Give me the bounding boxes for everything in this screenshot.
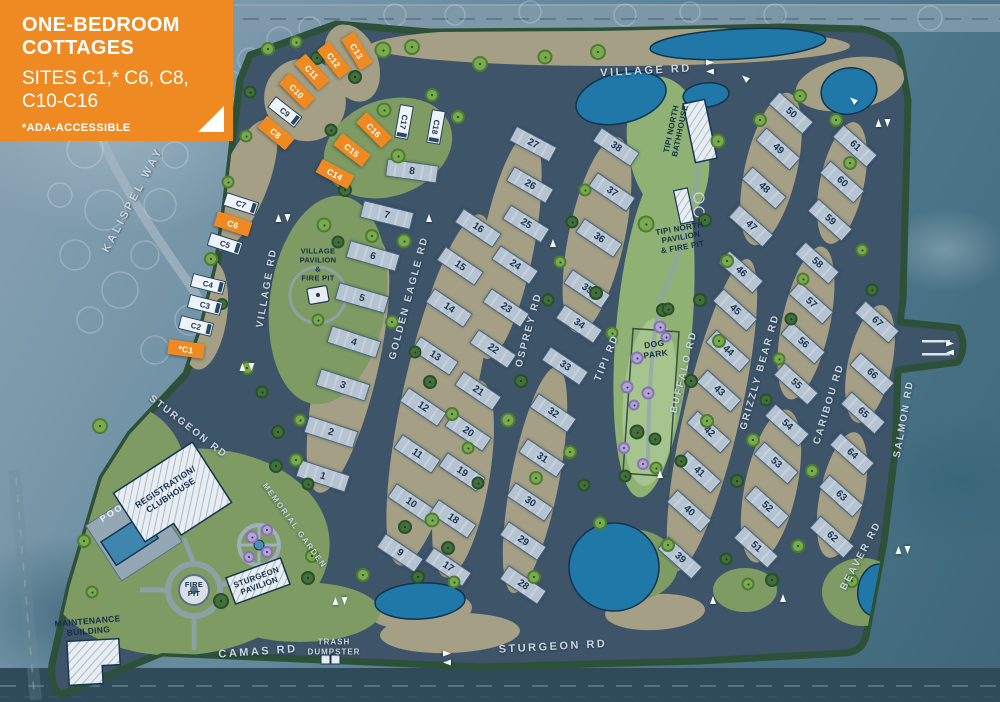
tree-icon [425,88,439,102]
traffic-arrow-icon [550,239,556,247]
site-pad: 30 [506,482,554,522]
tree-icon [711,134,726,149]
road-label: TRASH DUMPSTER [308,638,361,659]
tree-icon [312,314,325,327]
site-number: 7 [383,209,391,221]
site-pad: 36 [575,218,623,258]
tree-icon [579,184,592,197]
site-number: 56 [795,335,811,351]
road-label: VILLAGE RD [254,247,281,329]
tree-icon [317,218,332,233]
cottage-label: C17 [398,114,409,130]
tree-icon [398,520,412,534]
tree-icon [462,442,475,455]
site-number: 23 [498,300,513,315]
site-pad: 12 [399,387,447,427]
tree-icon [261,524,273,536]
tree-icon [538,50,553,65]
cottage-site: C7 [223,192,260,216]
tree-icon [411,570,425,584]
road-label: STURGEON RD [498,637,607,657]
site-pad: 37 [588,172,636,212]
site-number: 1 [319,470,328,482]
site-number: 59 [822,212,838,228]
site-pad: 4 [326,325,381,358]
site-number: 14 [441,300,456,315]
tree-icon [425,513,440,528]
site-number: 36 [591,230,606,245]
tree-icon [92,418,108,434]
site-pad: 56 [780,321,826,364]
tree-icon [661,538,675,552]
cottage-label: *C1 [178,343,194,355]
amenity-label: VILLAGE PAVILION & FIRE PIT [300,247,337,282]
tree-icon [290,36,303,49]
traffic-arrow-icon [333,597,348,605]
site-pad: 31 [518,438,566,478]
site-number: 12 [415,399,430,414]
tree-icon [637,458,649,470]
road-label: STURGEON RD [146,392,230,461]
road-label: CAMAS RD [218,642,298,662]
site-pad: 26 [506,166,554,204]
cottage-label: C16 [365,121,384,140]
site-pad: 23 [482,288,530,328]
site-number: 40 [681,503,697,519]
resort-map: KALISPEL WAYVILLAGE RDVILLAGE RDSTURGEON… [0,0,1000,702]
tree-icon [720,254,734,268]
site-pad: 51 [733,525,779,568]
site-pad: 40 [666,489,712,532]
traffic-arrow-icon [848,95,858,105]
site-number: 2 [327,426,336,438]
site-number: 51 [748,539,764,555]
tree-icon [472,56,488,72]
site-pad: 9 [376,533,424,573]
site-number: 53 [768,455,784,471]
tree-icon [243,551,255,563]
tree-icon [760,394,773,407]
tree-icon [261,546,273,558]
tree-icon [765,573,779,587]
site-pad: 34 [555,304,603,344]
tree-icon [856,244,869,257]
site-pad: 43 [696,369,742,412]
site-number: 48 [756,180,772,196]
tree-icon [843,156,857,170]
tree-icon [785,313,798,326]
cottage-label: C11 [303,63,321,82]
cottage-label: C15 [342,141,361,159]
tree-icon [423,375,437,389]
tree-icon [742,578,755,591]
tree-icon [451,110,465,124]
site-pad: 62 [809,515,855,558]
cottage-label: C8 [268,125,283,140]
tree-icon [269,459,283,473]
tree-icon [356,568,370,582]
site-number: 24 [507,257,522,272]
cottage-site-highlighted: C6 [214,211,253,236]
amenity-label: POOL [98,497,132,524]
cottage-label: C9 [278,105,292,118]
road-label: KALISPEL WAY [99,145,167,255]
site-number: 33 [557,358,572,373]
site-pad: 15 [436,246,484,286]
tree-icon [791,539,805,553]
site-number: 25 [518,216,533,231]
site-pad: 5 [335,282,390,314]
tree-icon [294,414,307,427]
tree-icon [448,576,461,589]
traffic-arrow-icon [443,651,451,666]
site-pad: 29 [499,521,547,561]
site-number: 46 [733,264,749,280]
tree-icon [730,474,744,488]
callout-corner-triangle [198,106,224,132]
tree-icon [753,113,767,127]
site-number: 18 [445,511,460,526]
tree-icon [375,42,392,59]
cottage-label: C12 [325,50,343,69]
tree-icon [638,216,655,233]
site-number: 22 [485,341,500,356]
site-number: 30 [522,494,537,509]
amenity-label: TIPI NORTH BATHHOUSE [661,102,690,158]
site-pad: 59 [807,198,853,241]
site-number: 45 [727,302,743,318]
site-pad: 67 [854,300,900,343]
tree-icon [619,470,632,483]
site-number: 47 [743,218,759,234]
tree-icon [261,42,275,56]
tree-icon [213,593,229,609]
cottage-label: C13 [348,41,365,60]
tree-icon [302,478,315,491]
site-pad: 14 [425,288,473,328]
tree-icon [805,464,819,478]
callout-title-line1: ONE-BEDROOM [22,14,180,36]
tree-icon [712,334,726,348]
tree-icon [618,442,630,454]
site-number: 4 [350,336,359,348]
tree-icon [649,433,662,446]
site-number: 15 [452,258,467,273]
cottage-label: C6 [226,217,240,230]
traffic-arrow-icon [657,470,663,478]
tree-icon [866,284,879,297]
tree-icon [256,386,269,399]
tree-icon [631,352,644,365]
road-label: TIPI RD [592,333,623,384]
site-pad: 55 [773,362,819,405]
tree-icon [642,387,655,400]
tree-icon [301,571,315,585]
site-number: 17 [440,559,455,574]
tree-icon [246,531,259,544]
cottage-site-highlighted: C16 [356,112,392,148]
amenity-label: TIPI NORTH PAVILION & FIRE PIT [655,220,708,256]
site-number: 63 [833,488,849,504]
tree-icon [829,113,843,127]
tree-icon [773,353,786,366]
site-pad: 7 [360,200,415,230]
site-pad: 32 [529,393,577,433]
tree-icon [472,477,485,490]
tree-icon [348,70,362,84]
site-pad: 49 [755,127,801,170]
road-label: BUFFALO RD [667,329,700,414]
site-number: 57 [803,295,819,311]
tree-icon [365,229,379,243]
site-pad: 16 [454,208,502,248]
tree-icon [289,453,303,467]
site-number: 8 [408,165,415,177]
tree-icon [240,130,253,143]
site-number: 67 [869,314,885,330]
traffic-arrow-icon [706,60,714,75]
site-number: 58 [809,255,825,271]
amenity-label: MAINTENANCE BUILDING [54,613,122,639]
site-number: 21 [470,383,485,398]
site-number: 9 [395,547,406,559]
cottage-label: C7 [235,198,248,210]
callout-sites-line2: C10-C16 [22,91,98,112]
road-label: SALMON RD [891,379,917,459]
tree-icon [409,346,422,359]
tree-icon [662,303,675,316]
site-pad: 64 [829,432,875,475]
road-label: OSPREY RD [513,291,545,368]
cottage-site-highlighted: C15 [333,133,371,167]
site-number: 38 [608,139,623,154]
cottage-site: C4 [190,273,226,295]
tree-icon [204,252,218,266]
site-number: 29 [515,533,530,548]
tree-icon [793,89,807,103]
cottage-label: C4 [202,278,214,289]
site-pad: 48 [741,166,787,209]
site-number: 26 [522,177,537,192]
site-pad: 44 [705,329,751,372]
site-number: 10 [403,495,418,510]
site-pad: 52 [744,485,790,528]
site-number: 43 [711,383,727,399]
tree-icon [563,445,577,459]
cottage-site: C2 [178,315,214,337]
tree-icon [621,381,634,394]
tree-icon [700,414,714,428]
site-number: 41 [691,464,707,480]
callout-title-line2: COTTAGES [22,37,134,59]
cottage-label: C14 [325,166,344,183]
traffic-arrow-icon [276,214,291,222]
site-pad: 2 [303,415,358,448]
tree-icon [527,570,541,584]
cottage-label: C10 [288,82,307,101]
site-number: 61 [847,138,863,154]
site-pad: 28 [499,565,547,605]
site-number: 31 [534,450,549,465]
callout-sites-line1: SITES C1,* C6, C8, [22,68,189,89]
site-number: 5 [358,292,366,304]
traffic-arrow-icon [946,341,954,356]
tree-icon [554,256,567,269]
site-number: 55 [788,376,804,392]
site-number: 50 [783,105,799,121]
site-pad: 22 [469,329,517,369]
site-number: 34 [571,316,586,331]
site-number: 52 [759,499,775,515]
tree-icon [693,293,707,307]
site-pad: 63 [818,474,864,517]
site-number: 39 [672,550,688,566]
tree-icon [244,86,257,99]
tree-icon [441,541,455,555]
tree-icon [629,400,640,411]
amenity-label: REGISTRATION/ CLUBHOUSE [133,464,202,519]
site-pad: 60 [819,160,865,203]
tree-icon [501,413,516,428]
traffic-arrow-icon [426,214,432,222]
site-pad: 33 [541,346,589,386]
site-pad: 50 [768,91,814,134]
site-number: 54 [779,417,795,433]
cottage-label: C2 [190,320,202,331]
tree-icon [630,425,645,440]
site-number: 3 [339,379,348,391]
site-pad: 45 [712,288,758,331]
site-number: 37 [604,184,619,199]
site-number: 60 [834,174,850,190]
cottage-site: C17 [394,104,414,140]
tree-icon [391,149,406,164]
tree-icon [222,176,235,189]
tree-icon [404,39,420,55]
site-pad: 38 [592,127,640,167]
traffic-arrow-icon [876,119,891,127]
cottage-label: C18 [430,119,441,135]
tree-icon [590,44,606,60]
tree-icon [377,103,392,118]
cottage-site-highlighted: C14 [316,159,355,189]
site-pad: 27 [509,126,558,163]
cottage-label: C3 [199,299,211,310]
tree-icon [514,374,528,388]
cottage-site-highlighted: *C1 [167,339,205,359]
site-number: 13 [427,348,442,363]
tree-icon [529,471,543,485]
tree-icon [593,516,607,530]
site-pad: 65 [840,391,886,434]
traffic-arrow-icon [780,594,786,602]
traffic-arrow-icon [240,363,255,371]
traffic-arrow-icon [740,73,750,83]
cottage-label: C5 [219,238,232,250]
site-number: 32 [545,405,560,420]
site-pad: 35 [563,269,611,309]
site-number: 27 [526,137,541,152]
site-pad: 6 [346,240,401,272]
site-pad: 66 [849,352,895,395]
site-pad: 53 [753,441,799,484]
road-label: VILLAGE RD [600,61,692,80]
tree-icon [325,124,338,137]
tree-icon [746,433,760,447]
callout-title: ONE-BEDROOM COTTAGES [22,14,233,61]
traffic-arrow-icon [710,596,716,604]
amenity-label: DOG PARK [641,337,668,360]
cottage-site: C3 [187,294,223,316]
traffic-arrow-icon [896,546,911,554]
tree-icon [86,586,99,599]
tree-icon [566,216,579,229]
tree-icon [589,286,603,300]
site-number: 49 [770,141,786,157]
site-number: 65 [855,405,871,421]
site-number: 16 [470,220,485,235]
site-pad: 47 [728,204,774,247]
site-pad: 11 [393,434,441,474]
site-number: 64 [844,446,860,462]
cottage-site: C18 [426,109,446,145]
amenity-label: FIRE PIT [185,581,203,599]
site-pad: 21 [454,371,502,411]
tree-icon [271,425,285,439]
tree-icon [578,479,591,492]
site-number: 66 [864,366,880,382]
tree-icon [445,407,459,421]
site-number: 11 [410,446,425,461]
site-pad: 25 [502,205,550,244]
legend-callout: ONE-BEDROOM COTTAGES SITES C1,* C6, C8, … [0,0,233,141]
tree-icon [720,553,733,566]
amenity-label: STURGEON PAVILION [232,565,283,599]
tree-icon [77,534,91,548]
site-number: 6 [369,250,377,262]
site-number: 19 [454,464,469,479]
tree-icon [675,455,688,468]
site-number: 62 [824,529,840,545]
site-pad: 3 [315,368,370,401]
site-number: 20 [460,424,475,439]
tree-icon [397,234,412,249]
site-pad: 54 [764,403,810,446]
tree-icon [797,273,810,286]
site-pad: 24 [491,245,539,285]
